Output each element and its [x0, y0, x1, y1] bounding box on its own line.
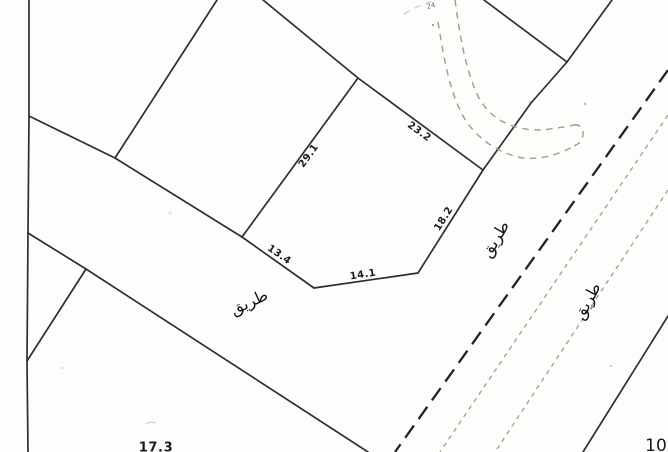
main-diagonal-road-edge [483, 0, 612, 170]
side-18-2 [418, 170, 483, 273]
parcel-boundaries [27, 0, 668, 452]
thin-dashed-edge-1 [440, 115, 668, 452]
road-centerline-bold-dashed [395, 70, 668, 452]
road-edges-thin-dashed [440, 115, 668, 452]
bottom-right-road-edge [583, 316, 668, 452]
lower-road-edge [28, 233, 368, 452]
curved-road-inner-edge [455, 0, 574, 130]
cadastral-map-canvas: 23.2 29.1 18.2 13.4 14.1 17.3 10 24 طريق… [0, 0, 668, 452]
dimension-label-10: 10 [645, 436, 667, 452]
top-parcel-divider [484, 0, 567, 62]
upper-road-edge [29, 116, 242, 237]
curved-road-end-cap [574, 125, 583, 146]
side-13-4 [242, 237, 314, 288]
dimension-label-17-3: 17.3 [139, 441, 173, 452]
side-23-2-line [263, 0, 483, 170]
scan-specks [59, 24, 612, 424]
northwest-parcel-side [115, 0, 217, 158]
thin-dashed-edge-2 [495, 190, 668, 452]
map-linework-svg [0, 0, 668, 452]
southwest-triangle-side [27, 269, 86, 361]
left-vertical-boundary [27, 0, 29, 452]
